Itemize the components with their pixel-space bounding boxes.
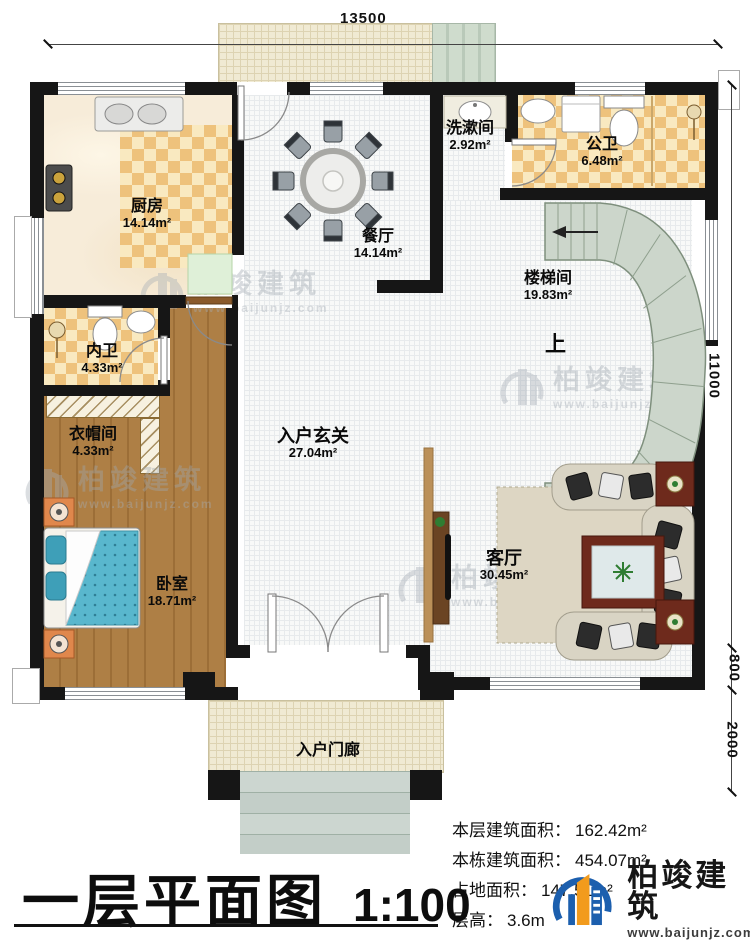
room-label-bedroom: 卧室 18.71m² (148, 576, 196, 608)
brand-site: www.baijunjz.com (627, 925, 750, 940)
window-living-bottom (490, 677, 640, 690)
wall-right-living (692, 346, 705, 690)
window-kitchen-top (58, 82, 185, 95)
window-sill-right (718, 70, 740, 110)
window-sill-left (14, 216, 32, 318)
porch-step (240, 792, 410, 814)
room-label-living: 客厅 30.45m² (480, 548, 528, 583)
wall-dining-right (430, 95, 443, 293)
room-name: 客厅 (480, 548, 528, 568)
room-name: 入户门廊 (296, 742, 360, 760)
room-label-porch: 入户门廊 (296, 742, 360, 760)
window-dining-top (310, 82, 383, 95)
porch-step (240, 771, 410, 793)
stair-up-label: 上 (545, 328, 566, 358)
room-name: 入户玄关 (277, 426, 349, 446)
corridor-floor (158, 308, 226, 687)
brand-logo-icon (548, 862, 621, 938)
wall-publicbath-left (505, 95, 518, 142)
kitchen-checker-floor (120, 125, 232, 268)
dim-right-height: 11000 (706, 353, 723, 399)
dim-tick (727, 643, 737, 653)
terrace-floor (218, 23, 434, 85)
stat-value: 3.6m (507, 911, 545, 930)
porch-floor (208, 700, 444, 773)
room-label-kitchen: 厨房 14.14m² (123, 198, 171, 230)
dining-foyer-floor (244, 95, 430, 645)
terrace-steps (432, 23, 496, 85)
room-area: 6.48m² (581, 154, 622, 169)
porch-column-bl (208, 770, 240, 800)
room-label-public-bath: 公卫 6.48m² (581, 136, 622, 168)
stat-value: 162.42m² (575, 821, 647, 840)
room-name: 内卫 (81, 343, 122, 361)
room-label-washroom: 洗漱间 2.92m² (446, 120, 494, 152)
dim-tick (727, 787, 737, 797)
dim-right-porch: 2000 (724, 721, 741, 758)
room-area: 30.45m² (480, 568, 528, 583)
room-name: 卧室 (148, 576, 196, 594)
floor-plan-canvas: 柏竣建筑 www.baijunjz.com 柏竣建筑 www.baijunjz.… (0, 0, 750, 946)
room-area: 27.04m² (277, 446, 349, 461)
room-area: 2.92m² (446, 138, 494, 153)
porch-step (240, 834, 410, 854)
room-label-cloakroom: 衣帽间 4.33m² (69, 426, 117, 458)
window-kitchen-left (30, 218, 44, 314)
room-label-stairwell: 楼梯间 19.83m² (524, 270, 572, 302)
room-area: 14.14m² (123, 216, 171, 231)
wall-innerbath-bottom (30, 385, 170, 396)
room-name: 洗漱间 (446, 120, 494, 138)
wall-innerbath-right-a (158, 308, 170, 340)
porch-column-tr (420, 672, 454, 700)
stat-floor-area: 本层建筑面积：162.42m² (452, 816, 647, 841)
room-area: 18.71m² (148, 594, 196, 609)
porch-column-tl (183, 672, 215, 700)
title-underline (14, 924, 438, 927)
dim-top-value: 13500 (340, 10, 387, 27)
dim-line-right (731, 85, 732, 792)
room-name: 楼梯间 (524, 270, 572, 288)
wall-dining-stair (377, 280, 443, 293)
wall-corridor-right (226, 295, 238, 645)
room-area: 4.33m² (81, 361, 122, 376)
wall-kitchen-right (232, 95, 244, 255)
room-name: 公卫 (581, 136, 622, 154)
room-label-inner-bath: 内卫 4.33m² (81, 343, 122, 375)
room-name: 衣帽间 (69, 426, 117, 444)
room-area: 4.33m² (69, 444, 117, 459)
closet-hatch (140, 418, 160, 474)
window-publicbath-top (575, 82, 645, 95)
room-name: 厨房 (123, 198, 171, 216)
window-bedroom-bottom (65, 687, 185, 700)
brand-logo: 柏竣建筑 www.baijunjz.com (548, 860, 750, 940)
brand-name: 柏竣建筑 (627, 860, 750, 922)
room-area: 19.83m² (524, 288, 572, 303)
wall-bath-bottom (500, 188, 718, 200)
stat-label: 本层建筑面积： (452, 821, 571, 840)
porch-column-br (410, 770, 442, 800)
porch-step (240, 813, 410, 835)
room-label-foyer: 入户玄关 27.04m² (277, 426, 349, 461)
wall-foyer-bottom-left (226, 645, 276, 658)
dim-tick (727, 685, 737, 695)
dim-right-bay: 800 (726, 654, 743, 682)
window-stair-right (705, 220, 718, 340)
room-label-dining: 餐厅 14.14m² (354, 228, 402, 260)
room-name: 餐厅 (354, 228, 402, 246)
room-area: 14.14m² (354, 246, 402, 261)
dim-line-top (48, 44, 718, 45)
wall-kitchen-bottom (30, 295, 186, 308)
exterior-pad-left (12, 668, 40, 704)
